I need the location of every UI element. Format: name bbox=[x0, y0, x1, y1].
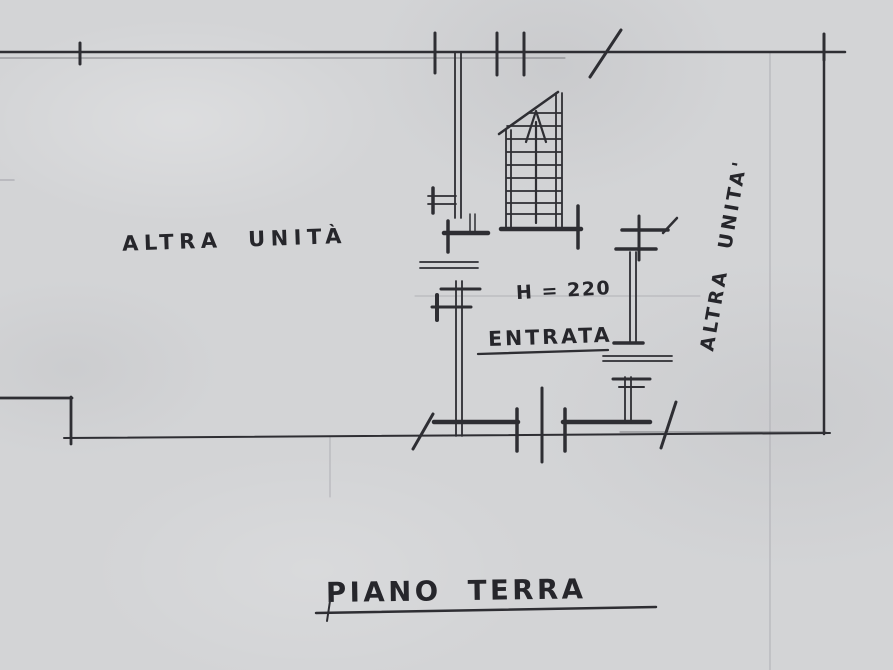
wall-post-double-line bbox=[625, 377, 631, 423]
label-height-note: H = 220 bbox=[516, 277, 612, 304]
stair-treads bbox=[507, 113, 561, 214]
door-threshold bbox=[603, 356, 672, 361]
lower-party-wall bbox=[456, 281, 462, 436]
title-block: PIANO TERRA bbox=[316, 573, 656, 621]
label-left-unit: ALTRA UNITÀ bbox=[122, 223, 348, 256]
annotations: ALTRA UNITÀ H = 220 ENTRATA ALTRA UNITA' bbox=[122, 157, 752, 354]
label-right-unit: ALTRA UNITA' bbox=[696, 157, 752, 353]
wall-section-thick bbox=[616, 230, 668, 249]
upper-party-wall bbox=[455, 52, 461, 218]
landing-wall-thick bbox=[444, 229, 581, 233]
scanned-floor-plan-page: ALTRA UNITÀ H = 220 ENTRATA ALTRA UNITA'… bbox=[0, 0, 893, 670]
bottom-interior-walls bbox=[413, 377, 676, 462]
door-slash bbox=[413, 402, 676, 449]
top-wall-door-slash bbox=[590, 30, 621, 77]
wall-hook bbox=[663, 218, 677, 233]
drawing-title: PIANO TERRA bbox=[326, 573, 587, 609]
top-wall-ticks bbox=[80, 33, 824, 75]
floor-plan-drawing: ALTRA UNITÀ H = 220 ENTRATA ALTRA UNITA'… bbox=[0, 0, 893, 670]
label-entrance: ENTRATA bbox=[488, 323, 613, 351]
door-threshold bbox=[420, 262, 478, 268]
wall-post-double-line bbox=[470, 214, 475, 233]
right-party-wall bbox=[630, 252, 636, 343]
staircase bbox=[499, 92, 562, 227]
bottom-wall bbox=[64, 433, 830, 438]
left-step-wall bbox=[0, 397, 72, 444]
right-interior-walls bbox=[603, 216, 677, 361]
